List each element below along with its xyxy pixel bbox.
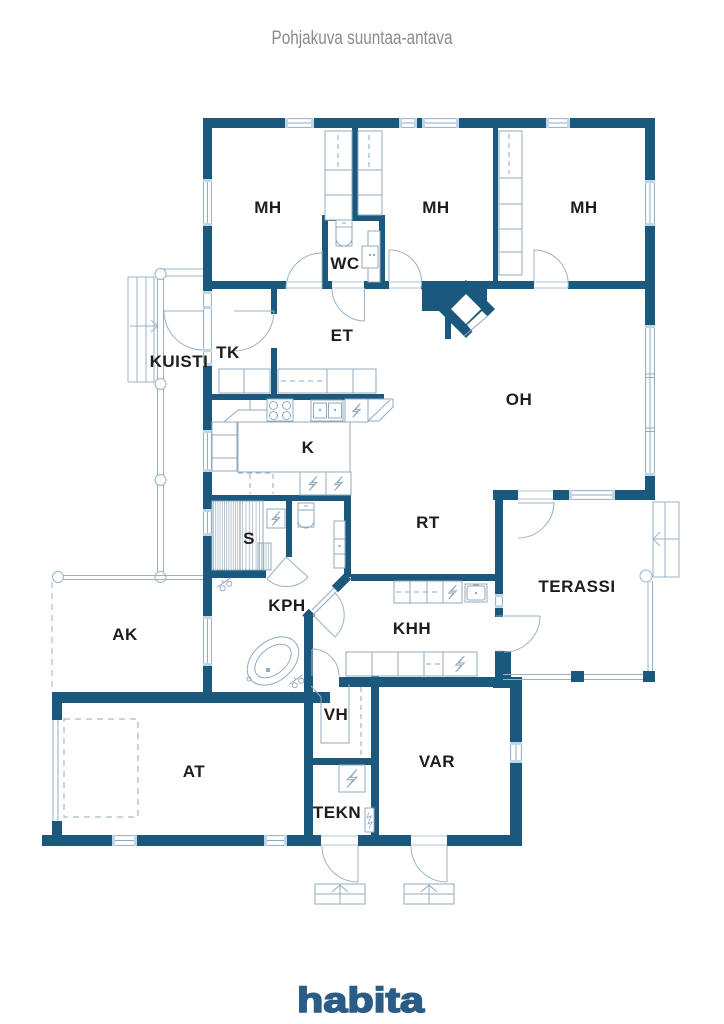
svg-text:K: K xyxy=(302,438,315,457)
svg-text:Pohjakuva suuntaa-antava: Pohjakuva suuntaa-antava xyxy=(272,28,453,49)
svg-text:AK: AK xyxy=(112,625,138,644)
svg-text:VAR: VAR xyxy=(419,752,455,771)
svg-text:TERASSI: TERASSI xyxy=(538,577,615,596)
svg-text:WC: WC xyxy=(330,254,359,273)
svg-text:TEKN: TEKN xyxy=(313,803,361,822)
svg-text:AT: AT xyxy=(183,762,206,781)
svg-text:KUISTI: KUISTI xyxy=(150,352,209,371)
svg-text:ET: ET xyxy=(331,326,354,345)
svg-text:KHH: KHH xyxy=(393,619,431,638)
svg-text:TK: TK xyxy=(216,343,240,362)
svg-text:MH: MH xyxy=(422,198,449,217)
svg-text:VH: VH xyxy=(324,705,349,724)
svg-text:MH: MH xyxy=(254,198,281,217)
svg-text:KPH: KPH xyxy=(268,596,305,615)
svg-text:MH: MH xyxy=(570,198,597,217)
svg-text:RT: RT xyxy=(416,513,440,532)
svg-text:habita: habita xyxy=(297,981,425,1020)
svg-text:S: S xyxy=(243,529,255,548)
svg-text:OH: OH xyxy=(506,390,533,409)
